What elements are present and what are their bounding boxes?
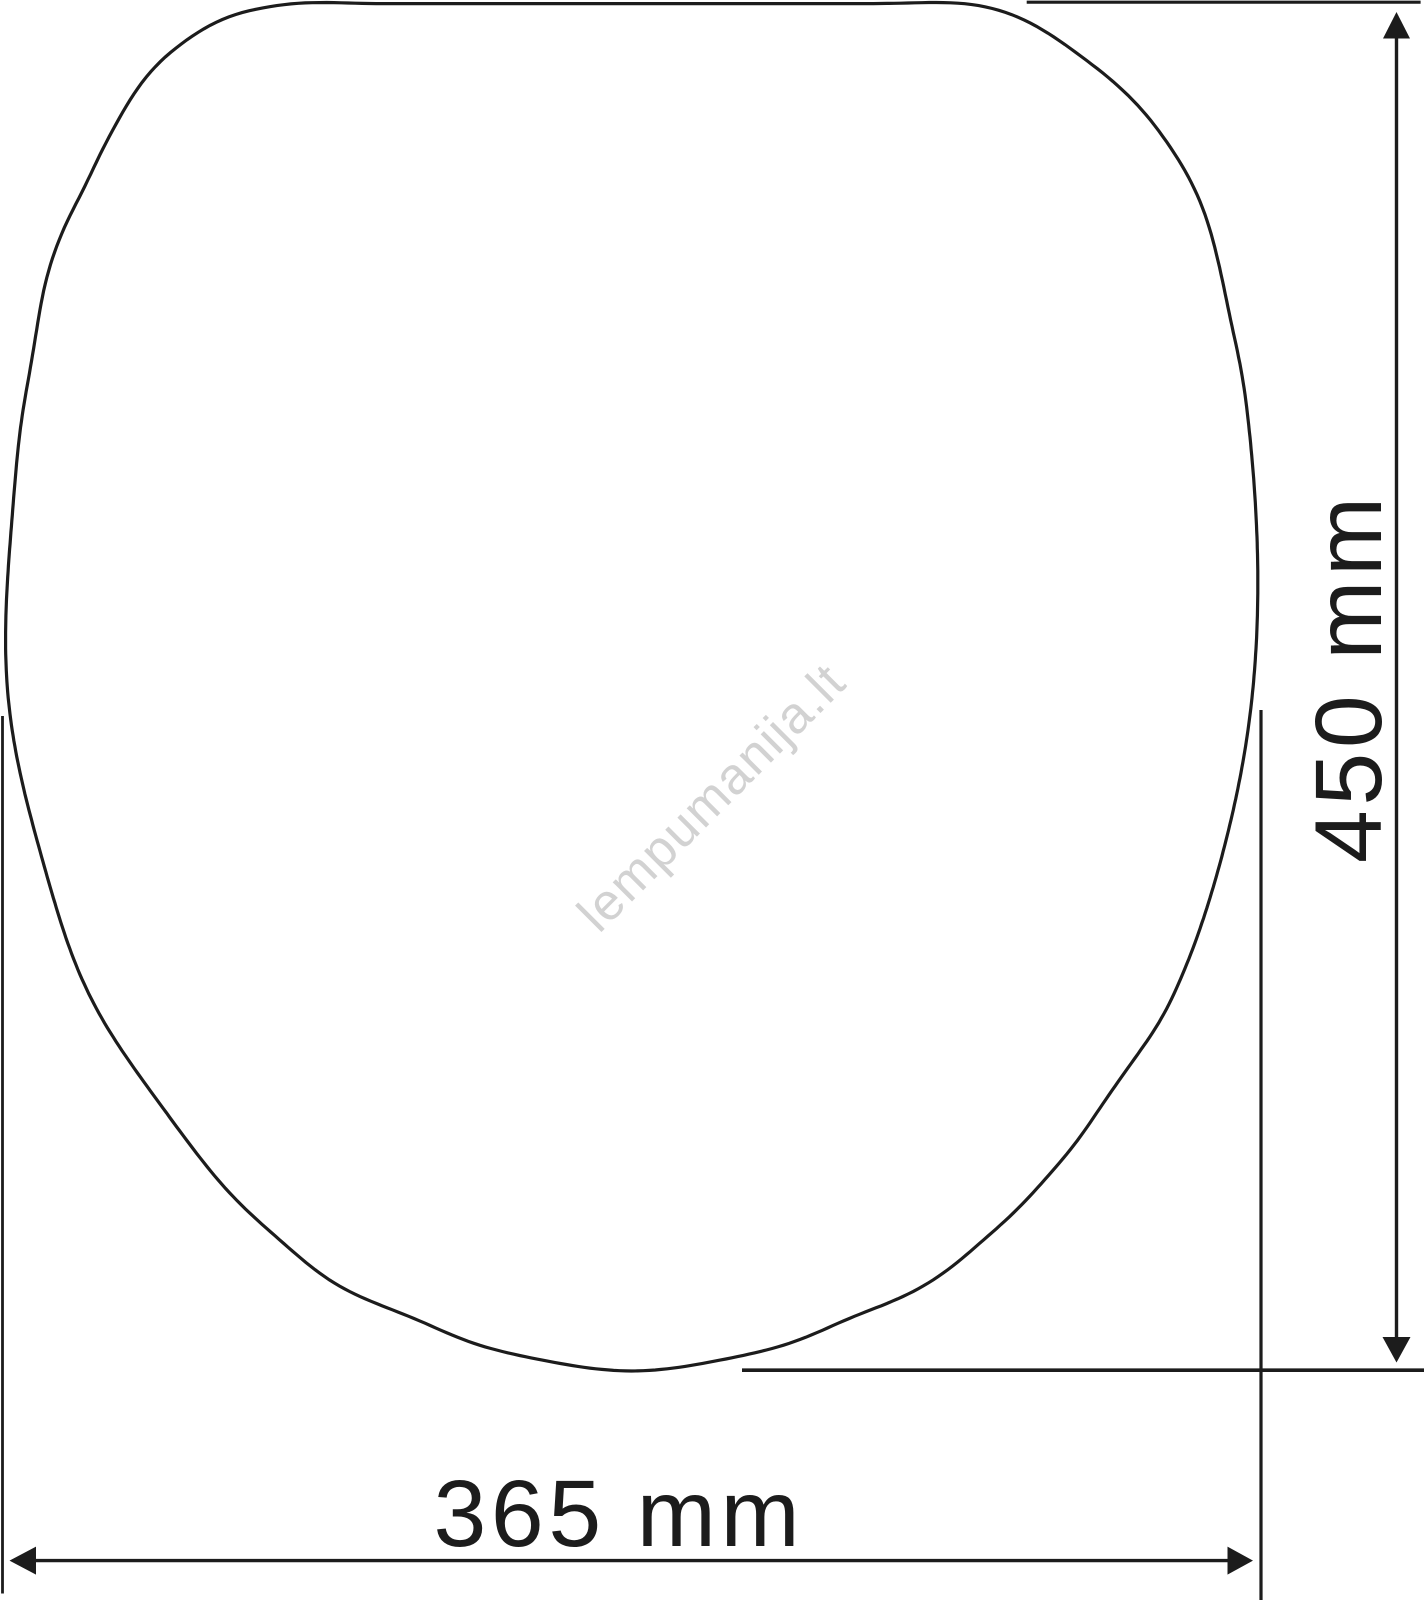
svg-text:365 mm: 365 mm — [434, 1461, 805, 1567]
svg-text:lempumanija.lt: lempumanija.lt — [566, 652, 857, 943]
svg-text:450 mm: 450 mm — [1296, 492, 1402, 863]
